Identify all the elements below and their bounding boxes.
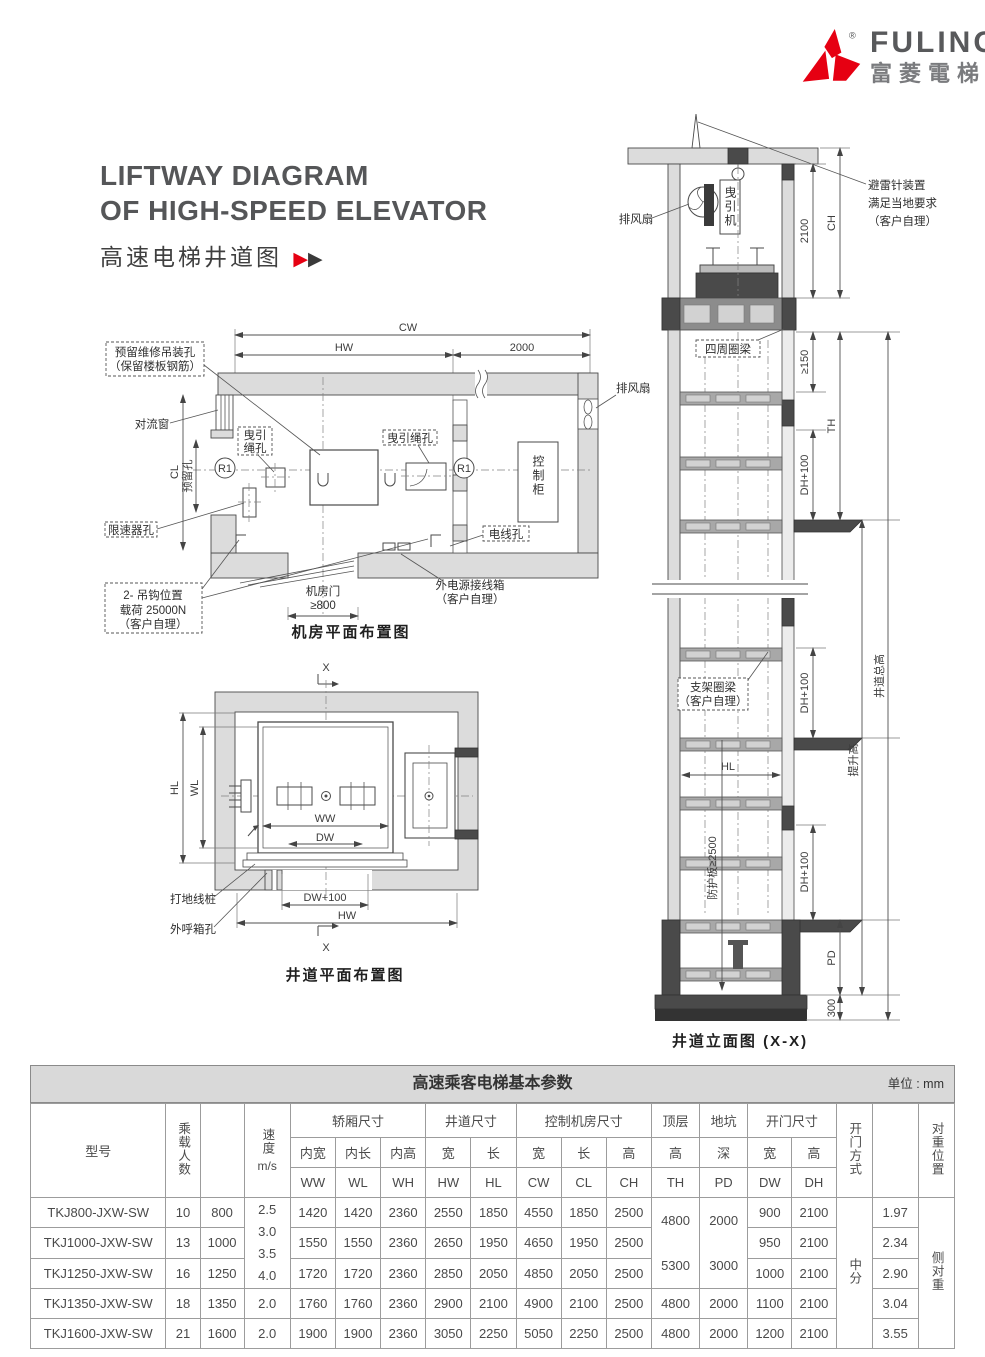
svg-text:DH+100: DH+100: [799, 673, 811, 714]
svg-text:（客户自理）: （客户自理）: [868, 214, 937, 228]
svg-text:曳引绳孔: 曳引绳孔: [387, 431, 433, 445]
svg-text:2100: 2100: [799, 219, 811, 243]
table-cell: 2000: [700, 1289, 748, 1319]
sub-pit-d: 深: [700, 1138, 748, 1168]
table-cell: 2360: [381, 1228, 426, 1258]
table-cell: 1550: [290, 1228, 335, 1258]
svg-text:CH: CH: [826, 215, 838, 231]
table-cell: 800: [200, 1198, 244, 1228]
code-ch: CH: [606, 1168, 651, 1198]
svg-text:2- 吊钩位置: 2- 吊钩位置: [123, 588, 182, 602]
svg-text:HL: HL: [721, 761, 735, 773]
table-cell: 2500: [606, 1319, 651, 1349]
dim-hl-b: HL: [169, 781, 181, 795]
plan-b-caption: 井道平面布置图: [285, 966, 404, 984]
dim-wl-b: WL: [189, 780, 201, 797]
code-wh: WH: [381, 1168, 426, 1198]
machine-room-floor-slab: [662, 298, 796, 330]
sub-door-w: 宽: [748, 1138, 792, 1168]
svg-text:限速器孔: 限速器孔: [108, 524, 154, 537]
table-cell: 1850: [471, 1198, 516, 1228]
dim-reserved-hole: 预留孔: [181, 460, 194, 493]
table-cell: 1900: [290, 1319, 335, 1349]
svg-text:（保留楼板钢筋）: （保留楼板钢筋）: [109, 359, 201, 373]
svg-text:≥800: ≥800: [310, 600, 336, 612]
table-cell: 16: [166, 1258, 200, 1288]
table-cell: 2100: [792, 1198, 836, 1228]
code-dh: DH: [792, 1168, 836, 1198]
table-cell: 1950: [471, 1228, 516, 1258]
svg-text:DH+100: DH+100: [799, 852, 811, 893]
table-cell: 2000 3000: [700, 1198, 748, 1289]
col-speed: 速度m/s: [244, 1104, 290, 1198]
svg-text:X: X: [322, 942, 330, 954]
col-model: 型号: [31, 1104, 166, 1198]
machine-room-plan-diagram: CW HW 2000: [98, 315, 668, 650]
buffer: [733, 945, 743, 969]
col-ctrl-size: 控制机房尺寸: [516, 1104, 651, 1138]
table-cell: 1950: [561, 1228, 606, 1258]
table-cell: 1850: [561, 1198, 606, 1228]
table-cell: 2500: [606, 1258, 651, 1288]
sub-door-h: 高: [792, 1138, 836, 1168]
brand-name-en: FULING: [870, 26, 985, 60]
svg-text:R1: R1: [218, 463, 232, 475]
table-cell: 3050: [426, 1319, 471, 1349]
code-th: TH: [651, 1168, 699, 1198]
sub-hw-w: 宽: [426, 1138, 471, 1168]
dim-2000: 2000: [510, 342, 534, 354]
dim-hw: HW: [335, 342, 354, 354]
svg-text:曳引: 曳引: [244, 428, 267, 442]
svg-text:R1: R1: [457, 463, 471, 475]
r1-marker-left: R1: [215, 458, 235, 478]
code-pd: PD: [700, 1168, 748, 1198]
title-subtitle-cn: 高速电梯井道图 ▶▶: [100, 238, 487, 272]
control-cabinet: 控制柜: [518, 442, 558, 522]
dim-dw: DW: [316, 832, 335, 844]
svg-text:电线孔: 电线孔: [489, 527, 524, 541]
table-cell: 1900: [335, 1319, 380, 1349]
svg-text:（客户自理）: （客户自理）: [679, 694, 748, 708]
table-cell: 10: [166, 1198, 200, 1228]
table-cell: 2650: [426, 1228, 471, 1258]
table-cell: 18: [166, 1289, 200, 1319]
table-cell: TKJ1000-JXW-SW: [31, 1228, 166, 1258]
svg-text:TH: TH: [826, 419, 838, 434]
table-cell: 1760: [335, 1289, 380, 1319]
col-pit: 地坑: [700, 1104, 748, 1138]
title-line-2: OF HIGH-SPEED ELEVATOR: [100, 193, 487, 228]
brand-logo: ® FULING 富菱電梯: [798, 26, 985, 96]
table-cell: 1600: [200, 1319, 244, 1349]
table-cell: 13: [166, 1228, 200, 1258]
table-cell: 2100: [792, 1258, 836, 1288]
table-cell: 2250: [471, 1319, 516, 1349]
sub-car-h: 内高: [381, 1138, 426, 1168]
code-cl: CL: [561, 1168, 606, 1198]
table-cell: 21: [166, 1319, 200, 1349]
table-cell: 1760: [290, 1289, 335, 1319]
fuling-logo-icon: ®: [798, 26, 864, 96]
sub-car-l: 内长: [335, 1138, 380, 1168]
table-cell: 2.34: [872, 1228, 918, 1258]
col-door-size: 开门尺寸: [748, 1104, 836, 1138]
hoistway-elevation-diagram: 曳引机: [600, 100, 980, 1060]
col-hoistway-size: 井道尺寸: [426, 1104, 516, 1138]
table-cell: 2050: [561, 1258, 606, 1288]
col-door-mode: 开门方式: [836, 1104, 872, 1198]
svg-text:防护板≥2500: 防护板≥2500: [705, 836, 719, 900]
spec-table: 型号 乘载人数 速度m/s 轿厢尺寸 井道尺寸 控制机房尺寸 顶层 地坑 开门尺…: [30, 1103, 955, 1349]
table-cell: 2000: [700, 1319, 748, 1349]
code-hl: HL: [471, 1168, 516, 1198]
svg-text:排风扇: 排风扇: [619, 212, 654, 226]
elev-dim-hl: HL: [682, 761, 780, 775]
svg-text:四周圈梁: 四周圈梁: [705, 342, 751, 356]
table-cell: 2550: [426, 1198, 471, 1228]
table-cell: 4550: [516, 1198, 561, 1228]
code-wl: WL: [335, 1168, 380, 1198]
table-cell: TKJ1350-JXW-SW: [31, 1289, 166, 1319]
svg-text:打地线桩: 打地线桩: [170, 892, 216, 906]
svg-text:避雷针装置: 避雷针装置: [868, 178, 926, 192]
table-cell: 2500: [606, 1289, 651, 1319]
page-title: LIFTWAY DIAGRAM OF HIGH-SPEED ELEVATOR 高…: [100, 158, 487, 272]
svg-text:支架圈梁: 支架圈梁: [690, 680, 736, 694]
code-cw: CW: [516, 1168, 561, 1198]
title-line-1: LIFTWAY DIAGRAM: [100, 158, 487, 193]
table-unit: 单位 : mm: [888, 1066, 944, 1102]
label-rope-hole-left: 曳引 绳孔: [238, 427, 274, 472]
dim-cl: CL: [169, 465, 181, 479]
table-cell: 2.90: [872, 1258, 918, 1288]
landing-sill-1: [794, 520, 862, 532]
break-lines: [640, 580, 820, 598]
dim-hw-b: HW: [338, 910, 357, 922]
table-cell: 900: [748, 1198, 792, 1228]
table-cell: 950: [748, 1228, 792, 1258]
parameter-table: 高速乘客电梯基本参数 单位 : mm 型号 乘载人数 速度m/s 轿厢尺寸 井道…: [30, 1065, 955, 1349]
svg-text:X: X: [322, 662, 330, 674]
traction-machine: [310, 450, 395, 505]
dim-ww: WW: [315, 813, 336, 825]
sub-top-h: 高: [651, 1138, 699, 1168]
table-cell: 2360: [381, 1258, 426, 1288]
table-cell: 2100: [792, 1319, 836, 1349]
dark-arrow-icon: ▶: [308, 249, 326, 270]
table-cell: 1550: [335, 1228, 380, 1258]
table-cell: 2250: [561, 1319, 606, 1349]
table-cell: 4800 5300: [651, 1198, 699, 1289]
label-ring-beam: 四周圈梁: [696, 329, 784, 357]
table-cell: 1250: [200, 1258, 244, 1288]
brand-name-cn: 富菱電梯: [870, 60, 985, 88]
spec-sheet-page: ® FULING 富菱電梯 LIFTWAY DIAGRAM OF HIGH-SP…: [0, 0, 985, 1357]
subtitle-text: 高速电梯井道图: [100, 244, 282, 270]
plan-dimensions-left: CL 预留孔: [169, 395, 196, 550]
svg-text:（客户自理）: （客户自理）: [436, 592, 505, 606]
table-cell: 2900: [426, 1289, 471, 1319]
table-cell: 2100: [471, 1289, 516, 1319]
elevation-caption: 井道立面图 (X-X): [672, 1032, 808, 1050]
table-cell: 中分: [836, 1198, 872, 1349]
svg-text:提升高: 提升高: [846, 744, 860, 777]
svg-text:PD: PD: [826, 950, 838, 965]
rope-hole-right: [401, 463, 451, 490]
sub-ctrl-l: 长: [561, 1138, 606, 1168]
svg-text:井道总高: 井道总高: [872, 654, 886, 698]
table-cell: 4800: [651, 1289, 699, 1319]
svg-text:满足当地要求: 满足当地要求: [868, 196, 937, 210]
code-dw: DW: [748, 1168, 792, 1198]
svg-text:DH+100: DH+100: [799, 455, 811, 496]
table-cell: 2850: [426, 1258, 471, 1288]
section-marker-bottom: X: [318, 923, 339, 954]
table-cell: TKJ800-JXW-SW: [31, 1198, 166, 1228]
sub-ctrl-w: 宽: [516, 1138, 561, 1168]
table-cell: 2100: [561, 1289, 606, 1319]
label-rope-hole-right: 曳引绳孔: [383, 430, 437, 463]
table-cell: 1200: [748, 1319, 792, 1349]
code-hw: HW: [426, 1168, 471, 1198]
table-cell: 3.55: [872, 1319, 918, 1349]
table-cell: 1000: [200, 1228, 244, 1258]
svg-text:机房门: 机房门: [306, 584, 341, 598]
table-cell: 1420: [335, 1198, 380, 1228]
floor-hooks: [236, 535, 441, 550]
svg-text:控制柜: 控制柜: [531, 455, 545, 497]
landing-sill-3: [794, 920, 862, 932]
col-load: [200, 1104, 244, 1198]
hoistway-plan-diagram: X: [105, 660, 555, 990]
table-cell: 4650: [516, 1228, 561, 1258]
dim-cw: CW: [399, 322, 418, 334]
table-cell: 侧对重: [918, 1198, 954, 1349]
svg-text:≥150: ≥150: [799, 350, 811, 374]
svg-text:（客户自理）: （客户自理）: [119, 617, 188, 631]
r1-marker-right: R1: [454, 458, 474, 478]
table-cell: 2360: [381, 1198, 426, 1228]
table-cell: 2100: [792, 1289, 836, 1319]
svg-text:对流窗: 对流窗: [135, 417, 170, 431]
col-car-size: 轿厢尺寸: [290, 1104, 425, 1138]
table-cell: 1420: [290, 1198, 335, 1228]
table-cell: 2500: [606, 1228, 651, 1258]
table-cell: 2360: [381, 1319, 426, 1349]
table-cell: 1350: [200, 1289, 244, 1319]
machine-room-elevation: 曳引机: [668, 164, 794, 298]
table-cell: 4900: [516, 1289, 561, 1319]
hoistway-walls-elevation: [668, 330, 794, 920]
table-cell: 2.0: [244, 1289, 290, 1319]
table-cell: 5050: [516, 1319, 561, 1349]
section-marker-top: X: [318, 662, 339, 687]
table-title-bar: 高速乘客电梯基本参数 单位 : mm: [30, 1065, 955, 1103]
col-top: 顶层: [651, 1104, 699, 1138]
sub-hw-l: 长: [471, 1138, 516, 1168]
table-cell: 2.5 3.0 3.5 4.0: [244, 1198, 290, 1289]
table-cell: 2500: [606, 1198, 651, 1228]
svg-text:载荷 25000N: 载荷 25000N: [120, 604, 186, 617]
svg-text:外呼箱孔: 外呼箱孔: [170, 922, 216, 936]
table-cell: 1720: [335, 1258, 380, 1288]
col-cwt-pos: 对重位置: [918, 1104, 954, 1198]
plan-caption: 机房平面布置图: [291, 623, 410, 641]
code-ww: WW: [290, 1168, 335, 1198]
table-cell: TKJ1600-JXW-SW: [31, 1319, 166, 1349]
registered-mark: ®: [849, 29, 856, 40]
table-cell: 2050: [471, 1258, 516, 1288]
label-convection-window: 对流窗: [135, 410, 218, 431]
col-persons: 乘载人数: [166, 1104, 200, 1198]
table-title: 高速乘客电梯基本参数: [412, 1075, 572, 1092]
dim-dw100: DW+100: [303, 892, 346, 904]
table-cell: 1720: [290, 1258, 335, 1288]
svg-text:300: 300: [826, 999, 838, 1017]
col-ratio: [872, 1104, 918, 1198]
sub-car-w: 内宽: [290, 1138, 335, 1168]
table-cell: 1.97: [872, 1198, 918, 1228]
svg-text:绳孔: 绳孔: [244, 441, 267, 455]
table-cell: 1100: [748, 1289, 792, 1319]
svg-text:外电源接线箱: 外电源接线箱: [436, 578, 505, 592]
table-cell: 2.0: [244, 1319, 290, 1349]
table-cell: 2360: [381, 1289, 426, 1319]
table-cell: TKJ1250-JXW-SW: [31, 1258, 166, 1288]
rope-hole-left: [261, 463, 290, 492]
table-cell: 3.04: [872, 1289, 918, 1319]
table-cell: 2100: [792, 1228, 836, 1258]
table-cell: 4800: [651, 1319, 699, 1349]
svg-text:预留维修吊装孔: 预留维修吊装孔: [115, 345, 196, 359]
table-cell: 4850: [516, 1258, 561, 1288]
table-cell: 1000: [748, 1258, 792, 1288]
brand-text: FULING 富菱電梯: [870, 26, 985, 88]
sub-ctrl-h: 高: [606, 1138, 651, 1168]
traction-machine-label: 曳引机: [723, 186, 737, 228]
governor-hole: [238, 483, 261, 522]
